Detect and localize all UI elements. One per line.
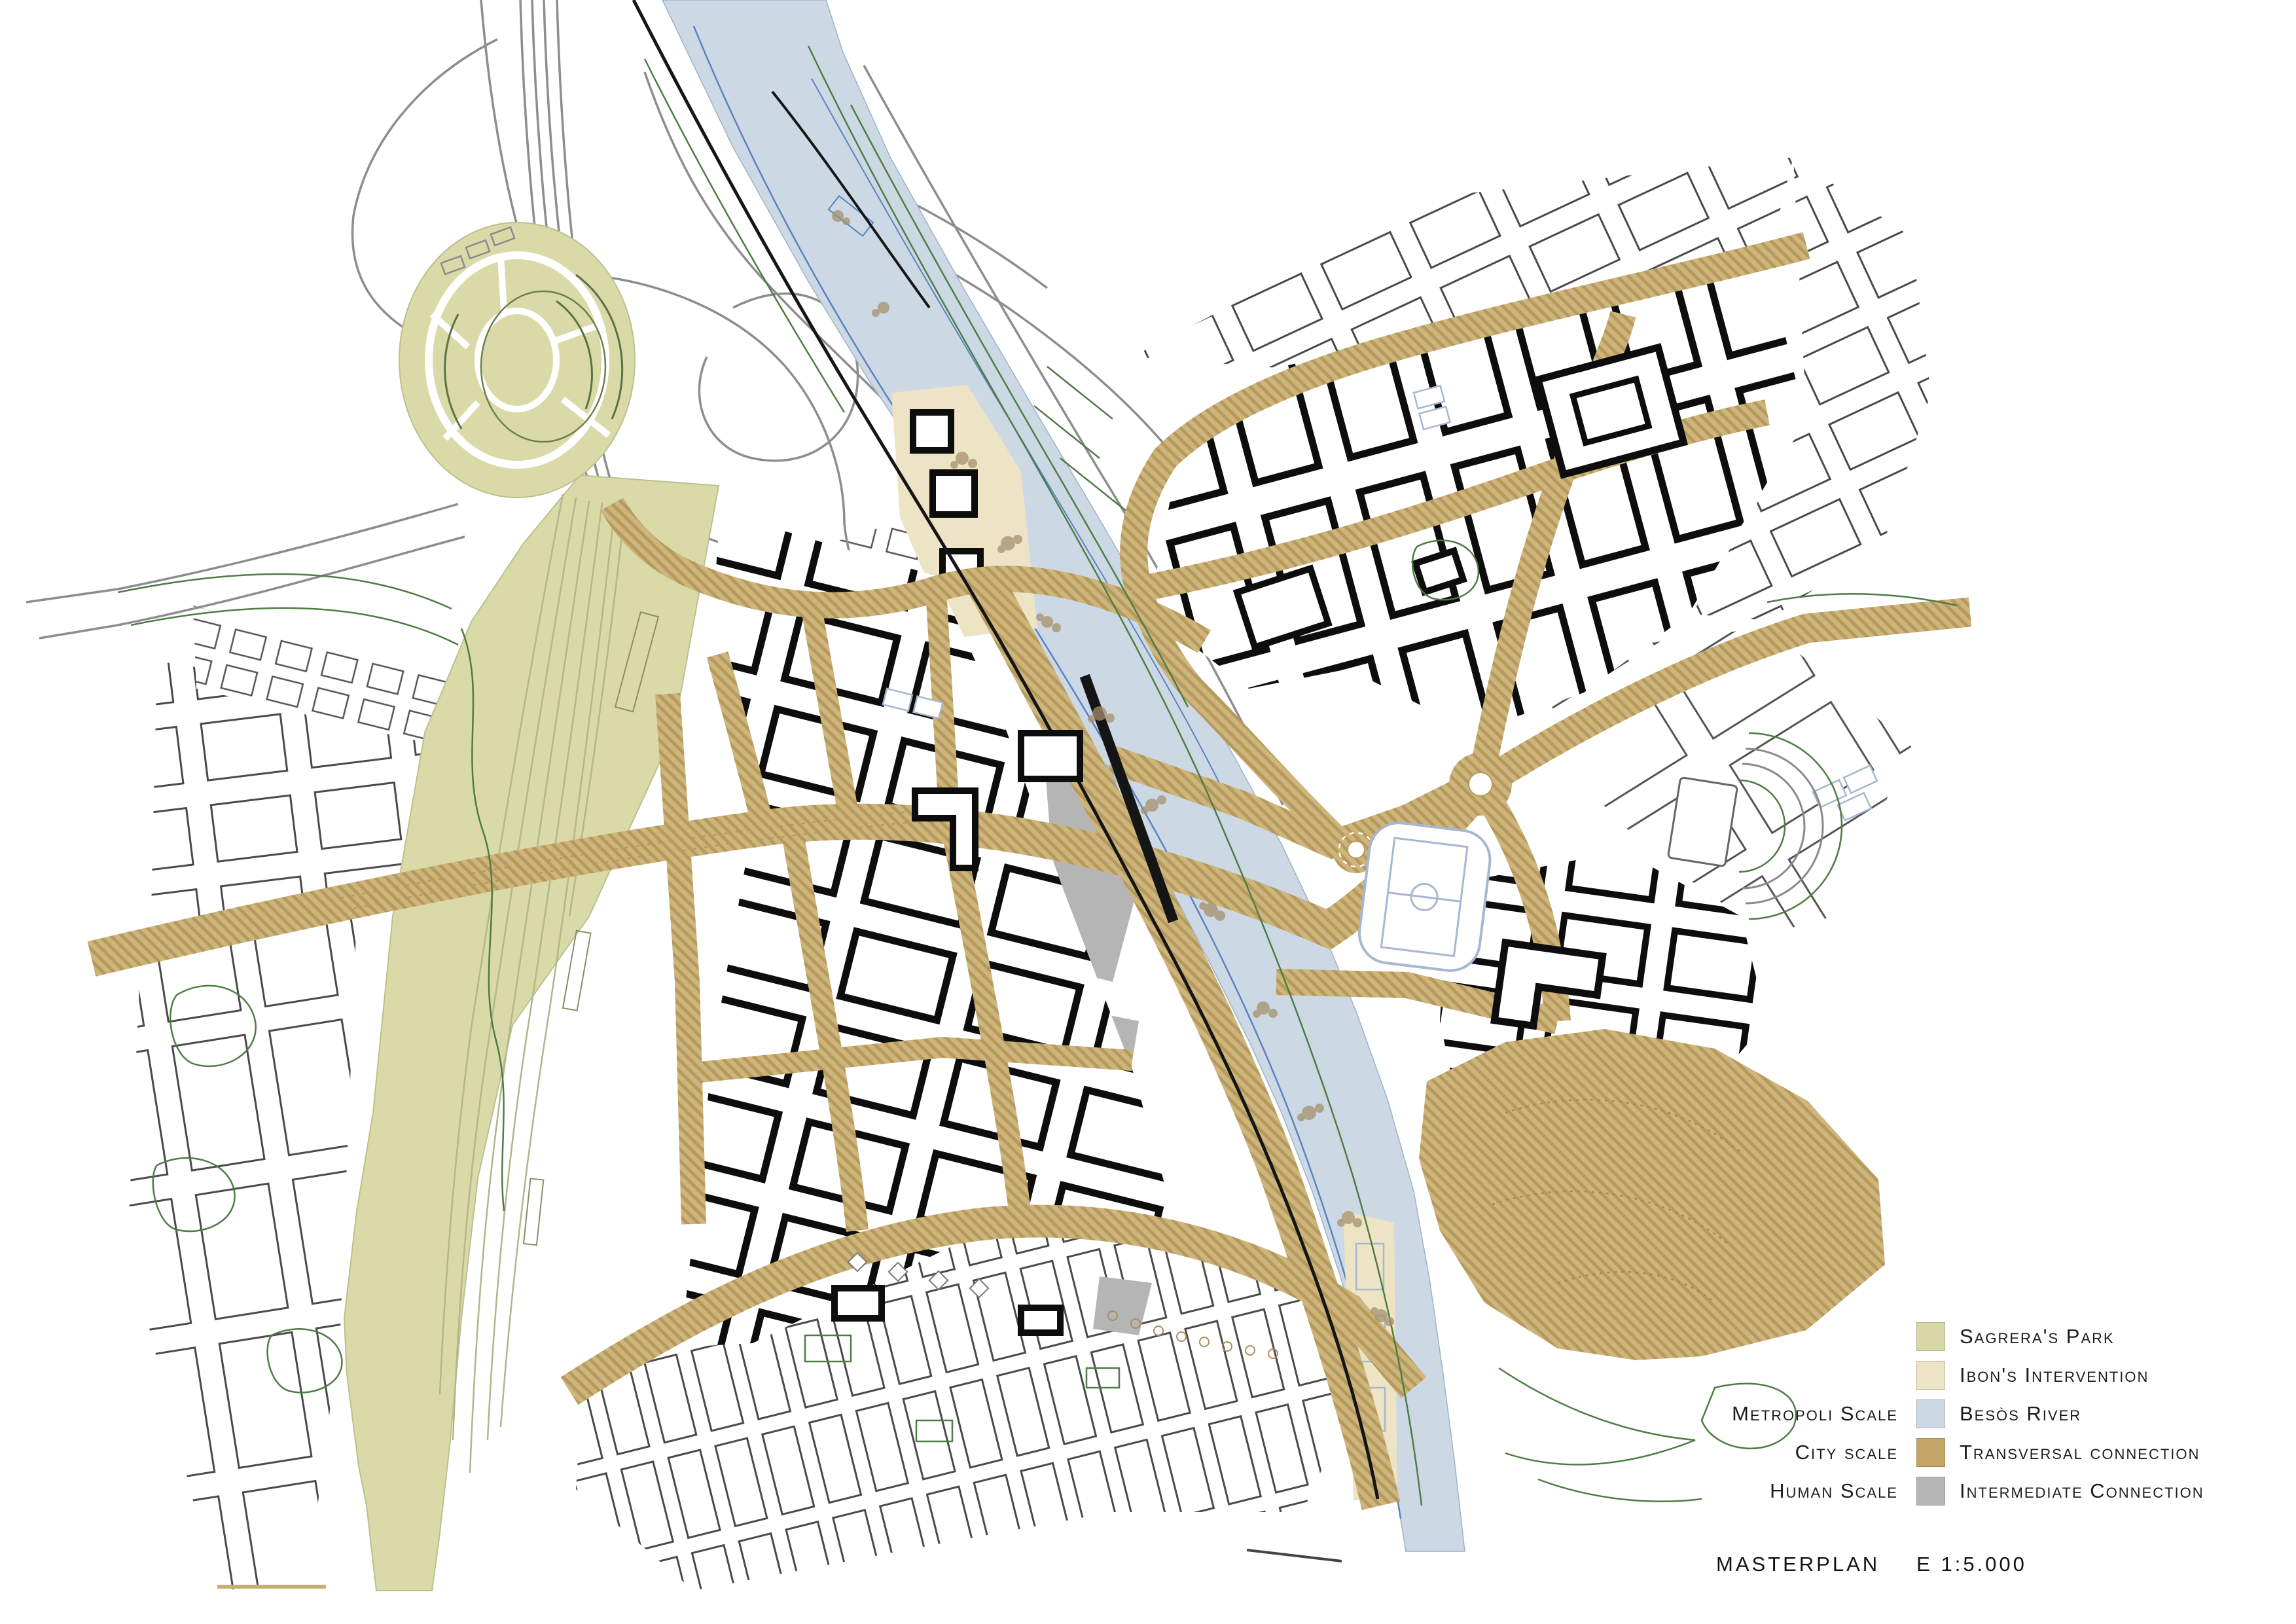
stadium: [1356, 820, 1494, 974]
title-scale: E 1:5.000: [1916, 1553, 2027, 1576]
street-district: [936, 589, 949, 812]
legend-label: Intermediate Connection: [1960, 1479, 2204, 1503]
legend-item-sagreras-park: Sagrera's Park: [1551, 1317, 2291, 1356]
legend-swatch-transversal: [1916, 1438, 1945, 1467]
legend-item-ibons-intervention: Ibon's Intervention: [1551, 1356, 2291, 1394]
legend-item-besos-river: Metropoli Scale Besòs River: [1551, 1394, 2291, 1433]
legend-swatch-river: [1916, 1399, 1945, 1428]
masterplan-sheet: Sagrera's Park Ibon's Intervention Metro…: [0, 0, 2296, 1624]
legend-swatch-park: [1916, 1322, 1945, 1351]
scale-label-metropoli: Metropoli Scale: [1551, 1402, 1898, 1426]
trinitat-roundabout: [399, 223, 635, 497]
legend: Sagrera's Park Ibon's Intervention Metro…: [1551, 1317, 2291, 1510]
legend-label: Ibon's Intervention: [1960, 1363, 2149, 1387]
legend-item-transversal-connection: City scale Transversal connection: [1551, 1433, 2291, 1471]
title-masterplan: MASTERPLAN: [1716, 1553, 1880, 1576]
scale-label-city: City scale: [1551, 1441, 1898, 1464]
scale-label-human: Human Scale: [1551, 1479, 1898, 1503]
legend-label: Transversal connection: [1960, 1441, 2200, 1464]
legend-item-intermediate-connection: Human Scale Intermediate Connection: [1551, 1471, 2291, 1510]
legend-swatch-intervention: [1916, 1361, 1945, 1390]
legend-label: Besòs River: [1960, 1402, 2081, 1426]
sheet-title: MASTERPLANE 1:5.000: [1716, 1553, 2027, 1576]
legend-swatch-intermediate: [1916, 1477, 1945, 1506]
legend-label: Sagrera's Park: [1960, 1325, 2115, 1348]
